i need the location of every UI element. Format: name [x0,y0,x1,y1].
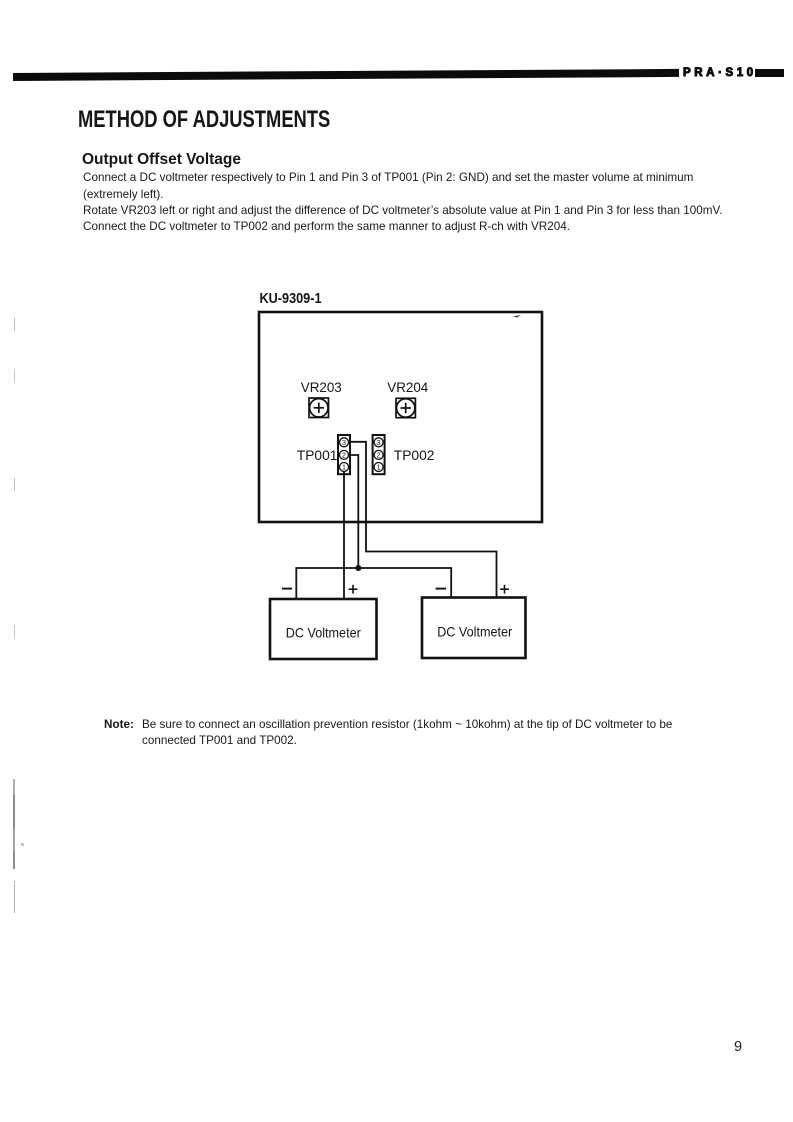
svg-text:TP001: TP001 [297,448,338,463]
svg-text:2: 2 [377,451,381,460]
svg-text:KU-9309-1: KU-9309-1 [260,291,322,307]
svg-text:2: 2 [342,451,346,460]
svg-text:DC Voltmeter: DC Voltmeter [437,624,512,640]
svg-text:3: 3 [342,438,346,447]
svg-text:DC Voltmeter: DC Voltmeter [286,625,361,641]
svg-text:3: 3 [377,438,381,447]
svg-text:1: 1 [377,463,381,472]
svg-text:VR204: VR204 [387,380,428,395]
svg-text:1: 1 [342,463,346,472]
svg-text:VR203: VR203 [301,380,342,395]
svg-text:TP002: TP002 [394,448,435,463]
